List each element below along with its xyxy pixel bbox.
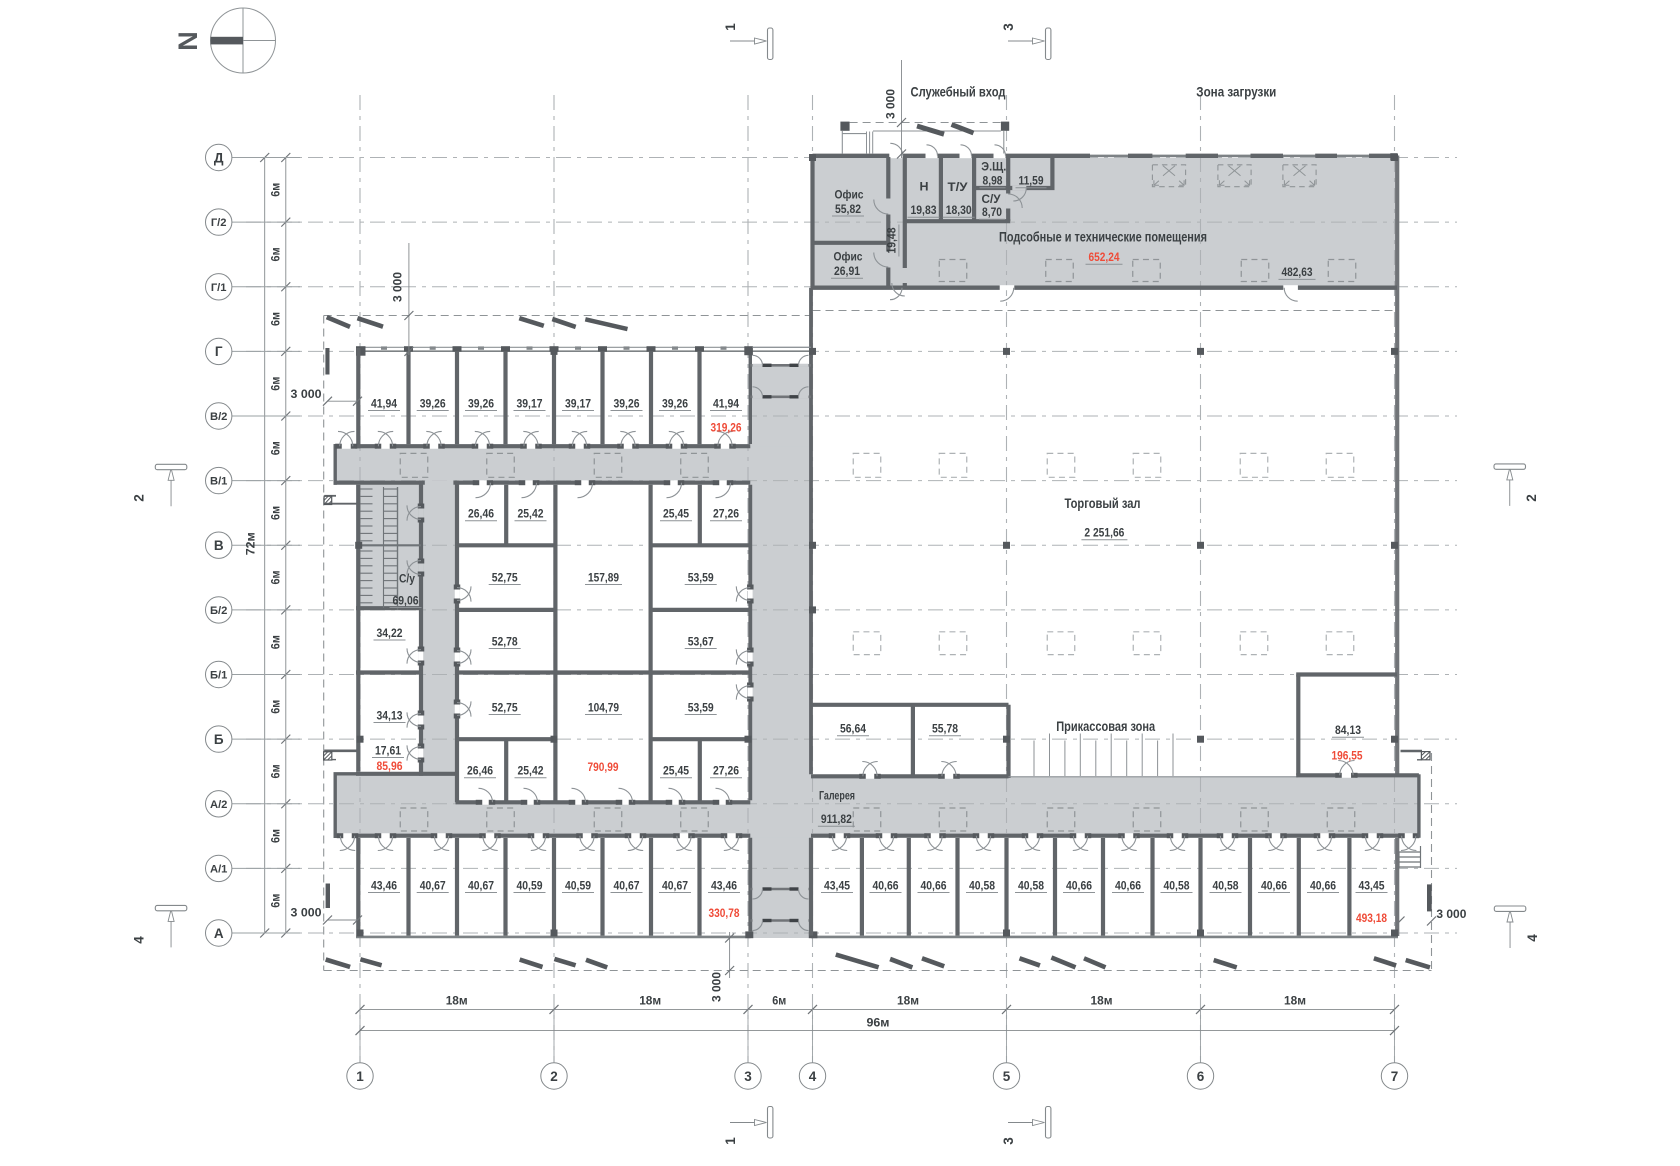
svg-text:43,46: 43,46 xyxy=(371,878,397,892)
svg-text:Б/2: Б/2 xyxy=(210,605,227,617)
svg-text:2: 2 xyxy=(1524,494,1539,502)
svg-text:72м: 72м xyxy=(244,532,258,555)
svg-text:19,48: 19,48 xyxy=(885,227,899,253)
svg-text:6м: 6м xyxy=(269,183,283,197)
svg-text:53,67: 53,67 xyxy=(688,634,714,648)
svg-text:40,66: 40,66 xyxy=(1115,878,1141,892)
svg-text:N: N xyxy=(173,31,203,51)
svg-text:40,66: 40,66 xyxy=(921,878,947,892)
svg-text:Галерея: Галерея xyxy=(819,789,855,803)
svg-text:6м: 6м xyxy=(772,994,786,1008)
svg-text:Н: Н xyxy=(920,180,929,194)
svg-text:104,79: 104,79 xyxy=(588,700,619,714)
svg-text:Г/2: Г/2 xyxy=(211,217,227,229)
svg-text:6м: 6м xyxy=(269,247,283,261)
svg-text:40,67: 40,67 xyxy=(662,878,688,892)
svg-text:43,46: 43,46 xyxy=(711,878,737,892)
svg-text:Служебный вход: Служебный вход xyxy=(911,85,1006,100)
svg-text:18м: 18м xyxy=(897,994,919,1008)
svg-text:А/2: А/2 xyxy=(210,799,227,811)
svg-text:18м: 18м xyxy=(1091,994,1113,1008)
svg-text:В/2: В/2 xyxy=(210,411,227,423)
svg-text:2: 2 xyxy=(132,494,147,502)
svg-text:40,67: 40,67 xyxy=(420,878,446,892)
svg-text:3 000: 3 000 xyxy=(1436,907,1466,921)
svg-text:2 251,66: 2 251,66 xyxy=(1084,526,1124,540)
svg-text:330,78: 330,78 xyxy=(709,906,740,920)
svg-text:25,42: 25,42 xyxy=(518,764,544,778)
svg-text:8,70: 8,70 xyxy=(982,205,1002,219)
svg-text:27,26: 27,26 xyxy=(713,764,739,778)
svg-text:3: 3 xyxy=(744,1069,752,1084)
svg-text:6м: 6м xyxy=(269,764,283,778)
svg-text:6м: 6м xyxy=(269,635,283,649)
svg-text:6м: 6м xyxy=(269,312,283,326)
svg-text:7: 7 xyxy=(1391,1069,1399,1084)
svg-text:790,99: 790,99 xyxy=(588,760,619,774)
svg-text:41,94: 41,94 xyxy=(713,396,739,410)
svg-text:43,45: 43,45 xyxy=(1359,878,1385,892)
svg-text:39,17: 39,17 xyxy=(565,396,591,410)
svg-text:18м: 18м xyxy=(446,994,468,1008)
svg-text:Подсобные и технические помеще: Подсобные и технические помещения xyxy=(999,230,1207,245)
svg-text:482,63: 482,63 xyxy=(1282,265,1313,279)
svg-text:Зона загрузки: Зона загрузки xyxy=(1196,85,1276,100)
svg-text:43,45: 43,45 xyxy=(824,878,850,892)
svg-text:25,42: 25,42 xyxy=(518,507,544,521)
svg-text:40,66: 40,66 xyxy=(1310,878,1336,892)
svg-text:Д: Д xyxy=(214,150,224,165)
svg-text:52,75: 52,75 xyxy=(492,700,518,714)
svg-text:40,66: 40,66 xyxy=(1261,878,1287,892)
svg-text:Б: Б xyxy=(214,732,224,747)
svg-text:6м: 6м xyxy=(269,894,283,908)
svg-text:Офис: Офис xyxy=(834,250,863,264)
svg-text:34,22: 34,22 xyxy=(377,626,403,640)
svg-text:69,06: 69,06 xyxy=(393,593,419,607)
svg-text:40,58: 40,58 xyxy=(1164,878,1190,892)
svg-text:6м: 6м xyxy=(269,506,283,520)
svg-text:А/1: А/1 xyxy=(210,863,227,875)
svg-text:4: 4 xyxy=(1525,934,1540,942)
svg-text:Офис: Офис xyxy=(835,187,864,201)
svg-text:41,94: 41,94 xyxy=(371,396,397,410)
svg-text:В: В xyxy=(214,538,224,553)
svg-text:18м: 18м xyxy=(639,994,661,1008)
svg-text:Т/У: Т/У xyxy=(948,180,968,194)
svg-text:39,26: 39,26 xyxy=(614,396,640,410)
svg-text:С/у: С/у xyxy=(399,572,415,586)
svg-text:40,58: 40,58 xyxy=(1018,878,1044,892)
svg-text:84,13: 84,13 xyxy=(1335,723,1361,737)
svg-text:8,98: 8,98 xyxy=(983,174,1003,188)
svg-text:3 000: 3 000 xyxy=(709,972,723,1002)
svg-text:40,59: 40,59 xyxy=(517,878,543,892)
svg-text:Г: Г xyxy=(215,344,223,359)
svg-text:52,75: 52,75 xyxy=(492,570,518,584)
svg-text:Торговый зал: Торговый зал xyxy=(1065,496,1141,511)
svg-text:Прикассовая зона: Прикассовая зона xyxy=(1056,719,1155,734)
svg-text:196,55: 196,55 xyxy=(1332,749,1363,763)
svg-text:27,26: 27,26 xyxy=(713,507,739,521)
svg-text:40,59: 40,59 xyxy=(565,878,591,892)
svg-text:1: 1 xyxy=(356,1069,364,1084)
svg-text:Э.Щ.: Э.Щ. xyxy=(981,160,1006,174)
svg-text:53,59: 53,59 xyxy=(688,700,714,714)
svg-text:26,46: 26,46 xyxy=(468,507,494,521)
svg-text:6: 6 xyxy=(1197,1069,1205,1084)
svg-text:652,24: 652,24 xyxy=(1089,250,1120,264)
svg-text:Б/1: Б/1 xyxy=(210,670,227,682)
svg-text:3 000: 3 000 xyxy=(291,387,322,401)
svg-text:56,64: 56,64 xyxy=(840,722,866,736)
svg-text:39,26: 39,26 xyxy=(468,396,494,410)
svg-text:319,26: 319,26 xyxy=(711,421,742,435)
svg-text:39,26: 39,26 xyxy=(662,396,688,410)
svg-text:3 000: 3 000 xyxy=(884,89,898,119)
svg-text:В/1: В/1 xyxy=(210,476,227,488)
svg-text:52,78: 52,78 xyxy=(492,634,518,648)
svg-text:6м: 6м xyxy=(269,700,283,714)
svg-text:40,67: 40,67 xyxy=(614,878,640,892)
svg-text:40,58: 40,58 xyxy=(969,878,995,892)
svg-text:11,59: 11,59 xyxy=(1019,174,1044,188)
svg-text:19,83: 19,83 xyxy=(911,203,937,217)
svg-text:4: 4 xyxy=(132,936,147,944)
svg-text:6м: 6м xyxy=(269,571,283,585)
svg-text:40,58: 40,58 xyxy=(1213,878,1239,892)
svg-text:4: 4 xyxy=(809,1069,817,1084)
svg-text:26,91: 26,91 xyxy=(834,264,860,278)
svg-text:Г/1: Г/1 xyxy=(211,282,227,294)
svg-text:40,66: 40,66 xyxy=(1066,878,1092,892)
svg-text:40,66: 40,66 xyxy=(873,878,899,892)
svg-text:34,13: 34,13 xyxy=(377,708,403,722)
svg-text:18м: 18м xyxy=(1284,994,1306,1008)
svg-text:3: 3 xyxy=(1001,23,1016,31)
svg-text:2: 2 xyxy=(550,1069,558,1084)
svg-text:96м: 96м xyxy=(867,1015,890,1029)
svg-text:6м: 6м xyxy=(269,377,283,391)
svg-text:493,18: 493,18 xyxy=(1356,911,1387,925)
svg-text:40,67: 40,67 xyxy=(468,878,494,892)
svg-text:3 000: 3 000 xyxy=(291,906,322,920)
svg-text:55,82: 55,82 xyxy=(835,202,861,216)
svg-text:1: 1 xyxy=(723,1137,738,1145)
svg-text:6м: 6м xyxy=(269,441,283,455)
svg-text:85,96: 85,96 xyxy=(377,759,403,773)
svg-text:1: 1 xyxy=(723,23,738,31)
svg-text:18,30: 18,30 xyxy=(946,203,972,217)
svg-text:6м: 6м xyxy=(269,829,283,843)
svg-text:25,45: 25,45 xyxy=(663,507,689,521)
svg-text:С/У: С/У xyxy=(982,192,1001,206)
svg-text:39,26: 39,26 xyxy=(420,396,446,410)
svg-text:53,59: 53,59 xyxy=(688,570,714,584)
svg-text:5: 5 xyxy=(1003,1069,1011,1084)
svg-text:А: А xyxy=(214,926,224,941)
svg-text:911,82: 911,82 xyxy=(821,812,852,826)
svg-text:25,45: 25,45 xyxy=(663,764,689,778)
svg-text:55,78: 55,78 xyxy=(932,722,958,736)
svg-text:157,89: 157,89 xyxy=(588,570,619,584)
svg-text:39,17: 39,17 xyxy=(517,396,543,410)
svg-text:3: 3 xyxy=(1001,1137,1016,1145)
svg-text:26,46: 26,46 xyxy=(467,764,493,778)
svg-text:3 000: 3 000 xyxy=(391,272,405,302)
svg-text:17,61: 17,61 xyxy=(375,743,401,757)
